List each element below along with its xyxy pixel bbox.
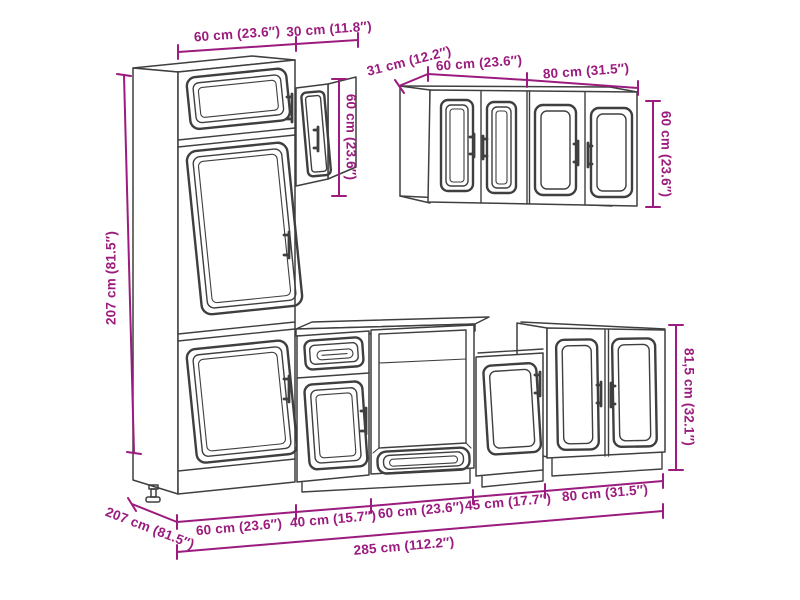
diagram-root: 60 cm (23.6″) 30 cm (11.8″) 207 cm (81.5…	[0, 0, 800, 600]
cabinet-foot	[146, 485, 160, 502]
dim-label-base-height: 81,5 cm (32.1″)	[682, 348, 697, 446]
wall-cabinet-group	[400, 86, 637, 206]
base-cabinets	[296, 317, 665, 492]
base-cabinet-60-open	[371, 325, 474, 474]
dim-label-wall30-height: 60 cm (23.6″)	[344, 94, 359, 180]
tall-cabinet	[133, 56, 303, 502]
base-cabinet-45	[476, 349, 543, 487]
base-cabinet-80	[547, 328, 665, 476]
dim-label-tall-height: 207 cm (81.5″)	[104, 231, 119, 325]
dim-label-wallgroup-height: 60 cm (23.6″)	[659, 111, 674, 197]
